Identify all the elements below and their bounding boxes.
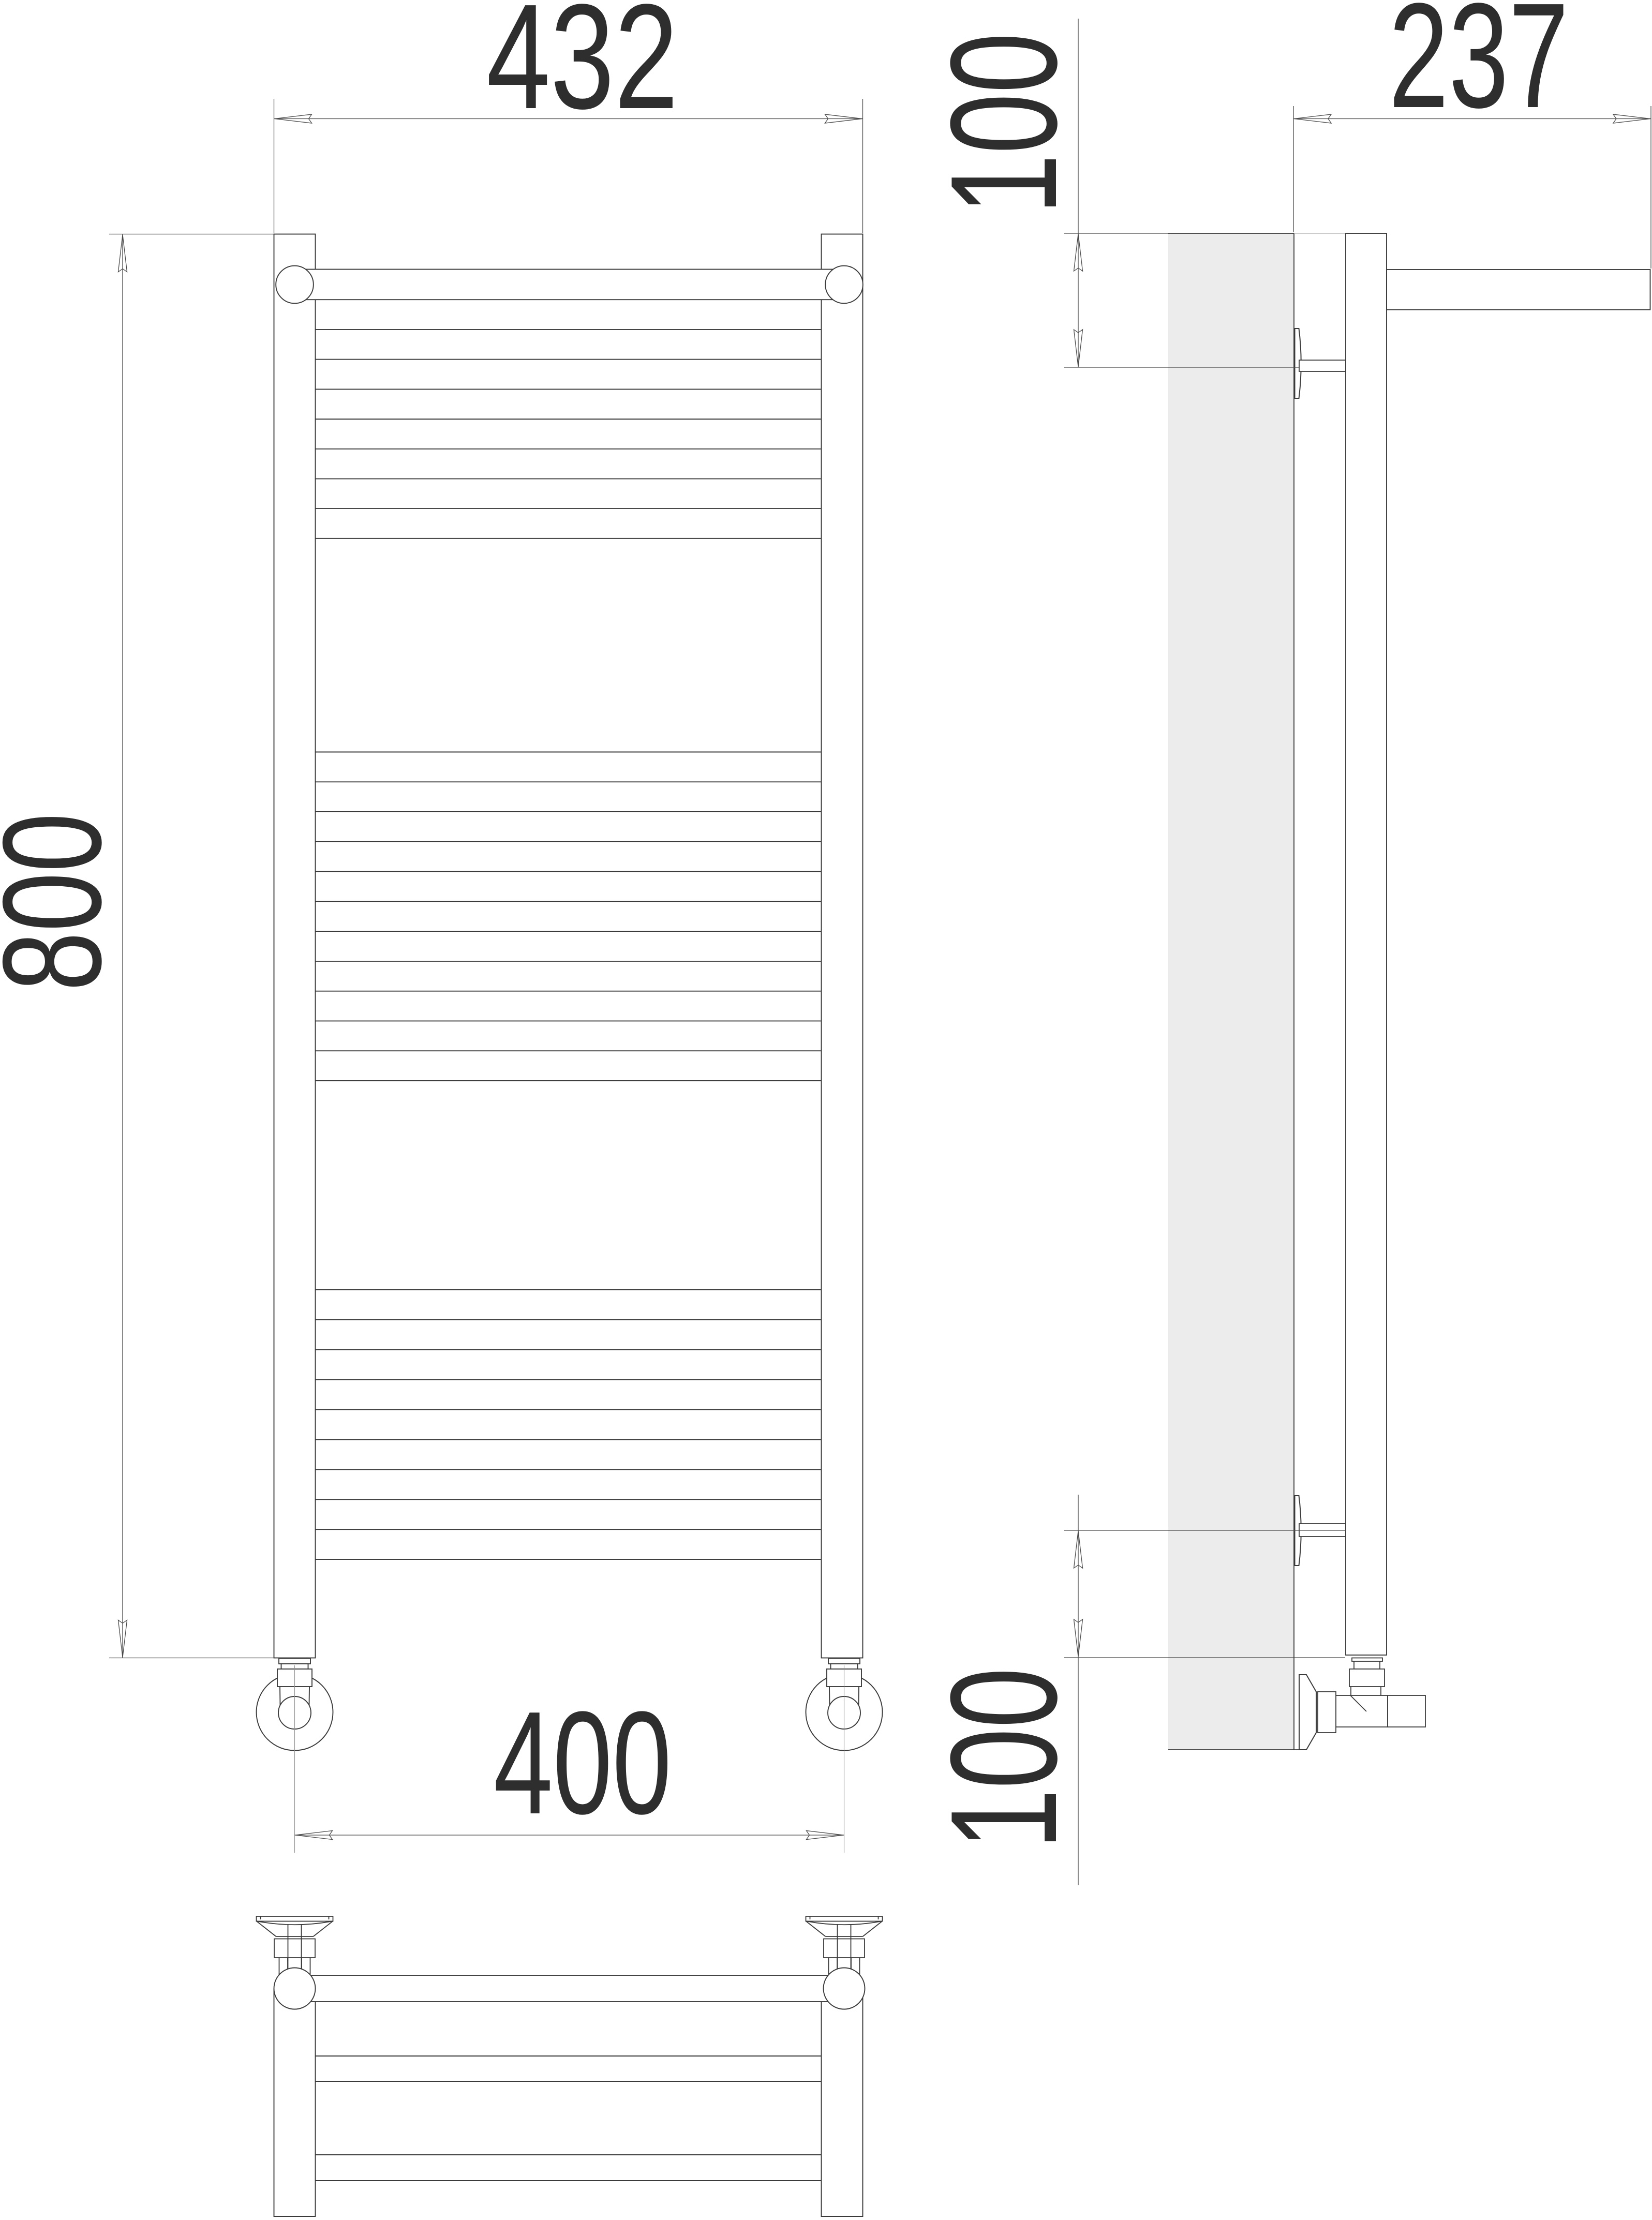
svg-text:100: 100 <box>919 1667 1089 1850</box>
svg-text:800: 800 <box>0 813 130 991</box>
svg-text:400: 400 <box>494 1681 672 1844</box>
svg-text:237: 237 <box>1389 0 1569 139</box>
svg-text:100: 100 <box>919 33 1089 215</box>
svg-text:432: 432 <box>486 0 678 140</box>
